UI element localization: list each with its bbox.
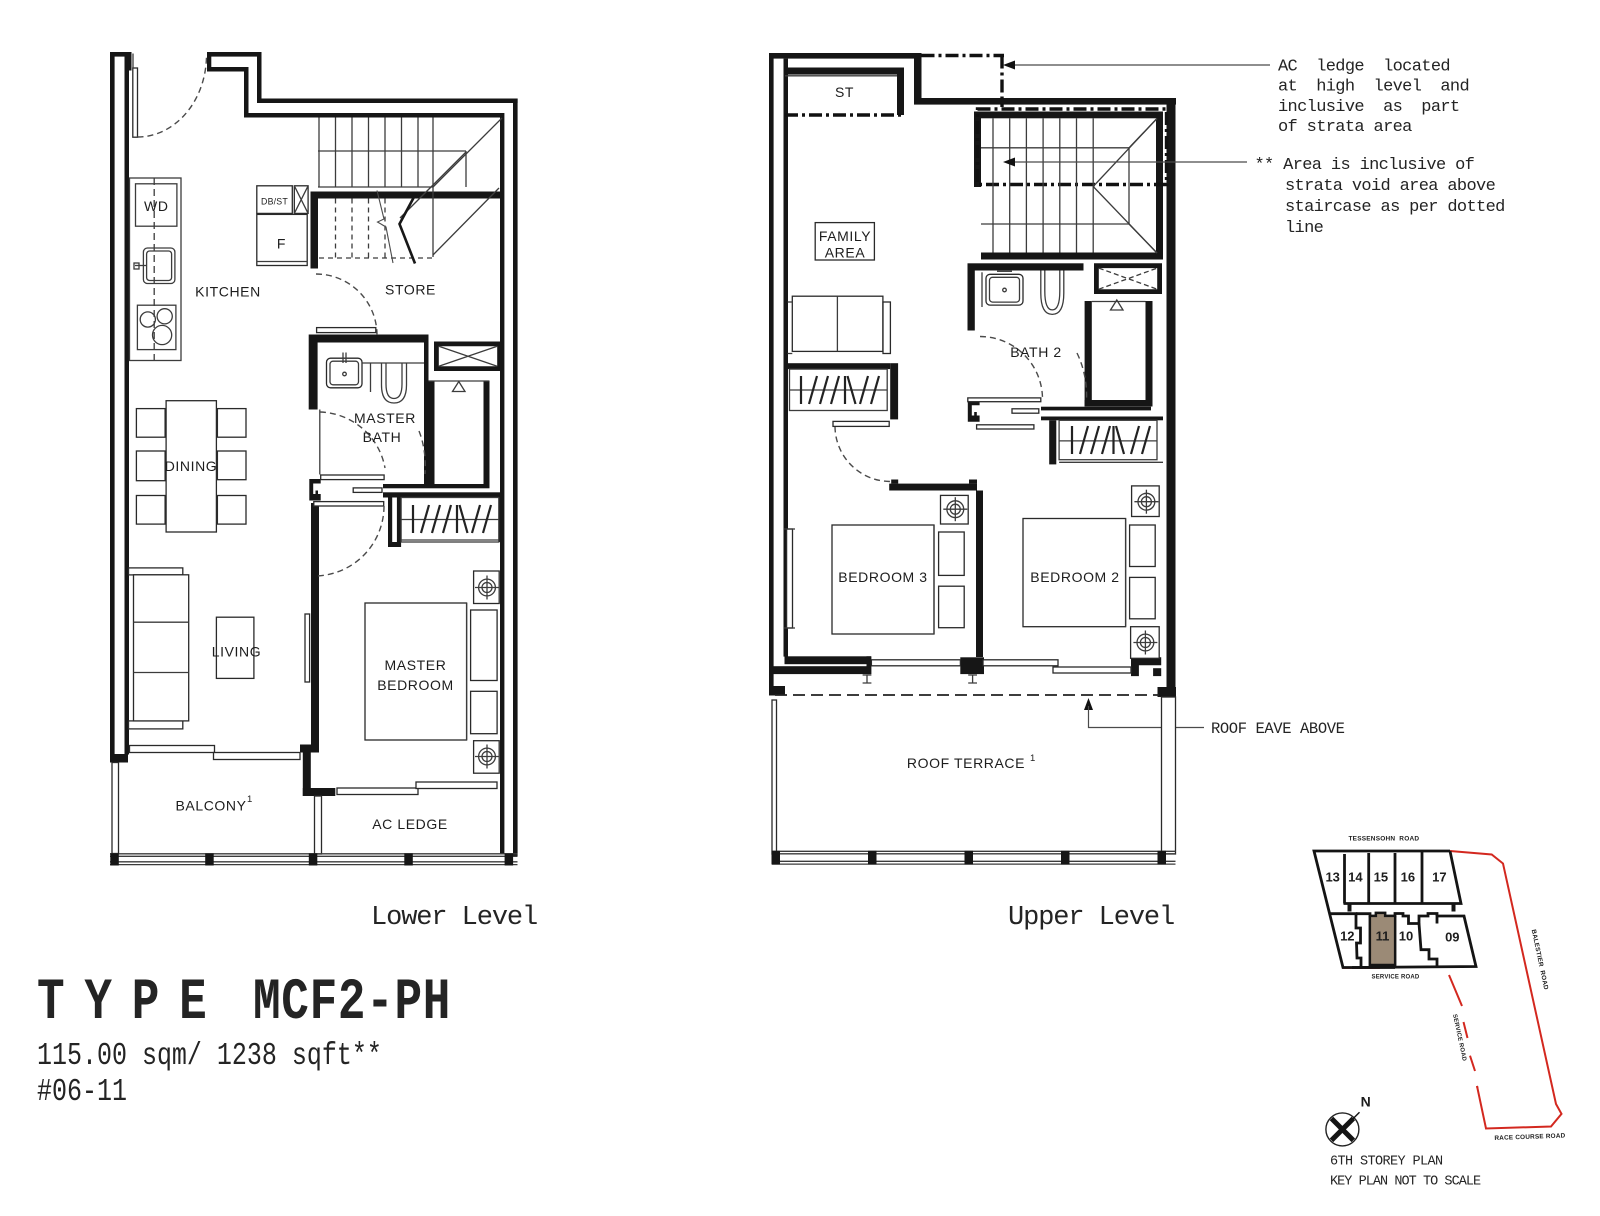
svg-text:17: 17 (1432, 870, 1446, 885)
svg-text:WD: WD (144, 198, 169, 214)
svg-text:inclusive as part: inclusive as part (1278, 98, 1459, 117)
svg-text:of strata area: of strata area (1278, 118, 1412, 137)
svg-text:at high level and: at high level and (1278, 78, 1469, 97)
svg-text:KITCHEN: KITCHEN (195, 284, 261, 300)
svg-text:1: 1 (247, 794, 252, 805)
svg-text:09: 09 (1445, 930, 1459, 945)
svg-text:ROOF TERRACE: ROOF TERRACE (907, 755, 1025, 771)
svg-text:FAMILY: FAMILY (819, 228, 871, 244)
svg-text:SERVICE ROAD: SERVICE ROAD (1372, 975, 1420, 981)
svg-text:15: 15 (1374, 870, 1388, 885)
svg-text:Upper Level: Upper Level (1008, 903, 1174, 933)
svg-text:staircase as per dotted: staircase as per dotted (1285, 198, 1505, 217)
svg-text:AC LEDGE: AC LEDGE (372, 816, 448, 832)
svg-text:BALCONY: BALCONY (175, 798, 246, 814)
svg-text:F: F (277, 236, 286, 252)
svg-text:strata void area above: strata void area above (1285, 177, 1496, 196)
svg-text:BATH 2: BATH 2 (1010, 344, 1062, 360)
svg-text:MASTER: MASTER (385, 657, 447, 673)
svg-text:6TH STOREY PLAN: 6TH STOREY PLAN (1330, 1155, 1443, 1170)
svg-text:14: 14 (1348, 870, 1363, 885)
svg-text:LIVING: LIVING (212, 644, 262, 660)
svg-text:BATH: BATH (363, 429, 402, 445)
svg-text:AC ledge located: AC ledge located (1278, 58, 1450, 77)
svg-text:STORE: STORE (385, 282, 436, 298)
svg-text:16: 16 (1401, 870, 1415, 885)
svg-text:10: 10 (1399, 929, 1413, 944)
svg-text:Lower Level: Lower Level (371, 903, 537, 933)
svg-text:BEDROOM 3: BEDROOM 3 (838, 569, 927, 585)
svg-text:N: N (1361, 1094, 1371, 1110)
svg-text:11: 11 (1376, 929, 1390, 944)
svg-text:** Area is inclusive of: ** Area is inclusive of (1255, 156, 1475, 175)
svg-text:1: 1 (1030, 753, 1035, 764)
svg-text:BEDROOM 2: BEDROOM 2 (1030, 569, 1119, 585)
svg-text:13: 13 (1325, 870, 1339, 885)
svg-text:TESSENSOHN ROAD: TESSENSOHN ROAD (1349, 836, 1420, 843)
svg-text:line: line (1285, 219, 1324, 238)
svg-text:#06-11: #06-11 (37, 1075, 127, 1110)
svg-text:KEY PLAN NOT TO SCALE: KEY PLAN NOT TO SCALE (1330, 1175, 1481, 1190)
svg-text:ST: ST (835, 84, 854, 100)
svg-text:MASTER: MASTER (354, 410, 416, 426)
svg-text:BEDROOM: BEDROOM (377, 677, 454, 693)
svg-text:DB/ST: DB/ST (261, 197, 288, 207)
svg-text:AREA: AREA (825, 245, 866, 261)
svg-text:ROOF EAVE ABOVE: ROOF EAVE ABOVE (1211, 720, 1345, 738)
svg-text:115.00 sqm/ 1238 sqft**: 115.00 sqm/ 1238 sqft** (37, 1039, 382, 1074)
svg-text:DINING: DINING (165, 458, 218, 474)
svg-text:12: 12 (1340, 929, 1354, 944)
